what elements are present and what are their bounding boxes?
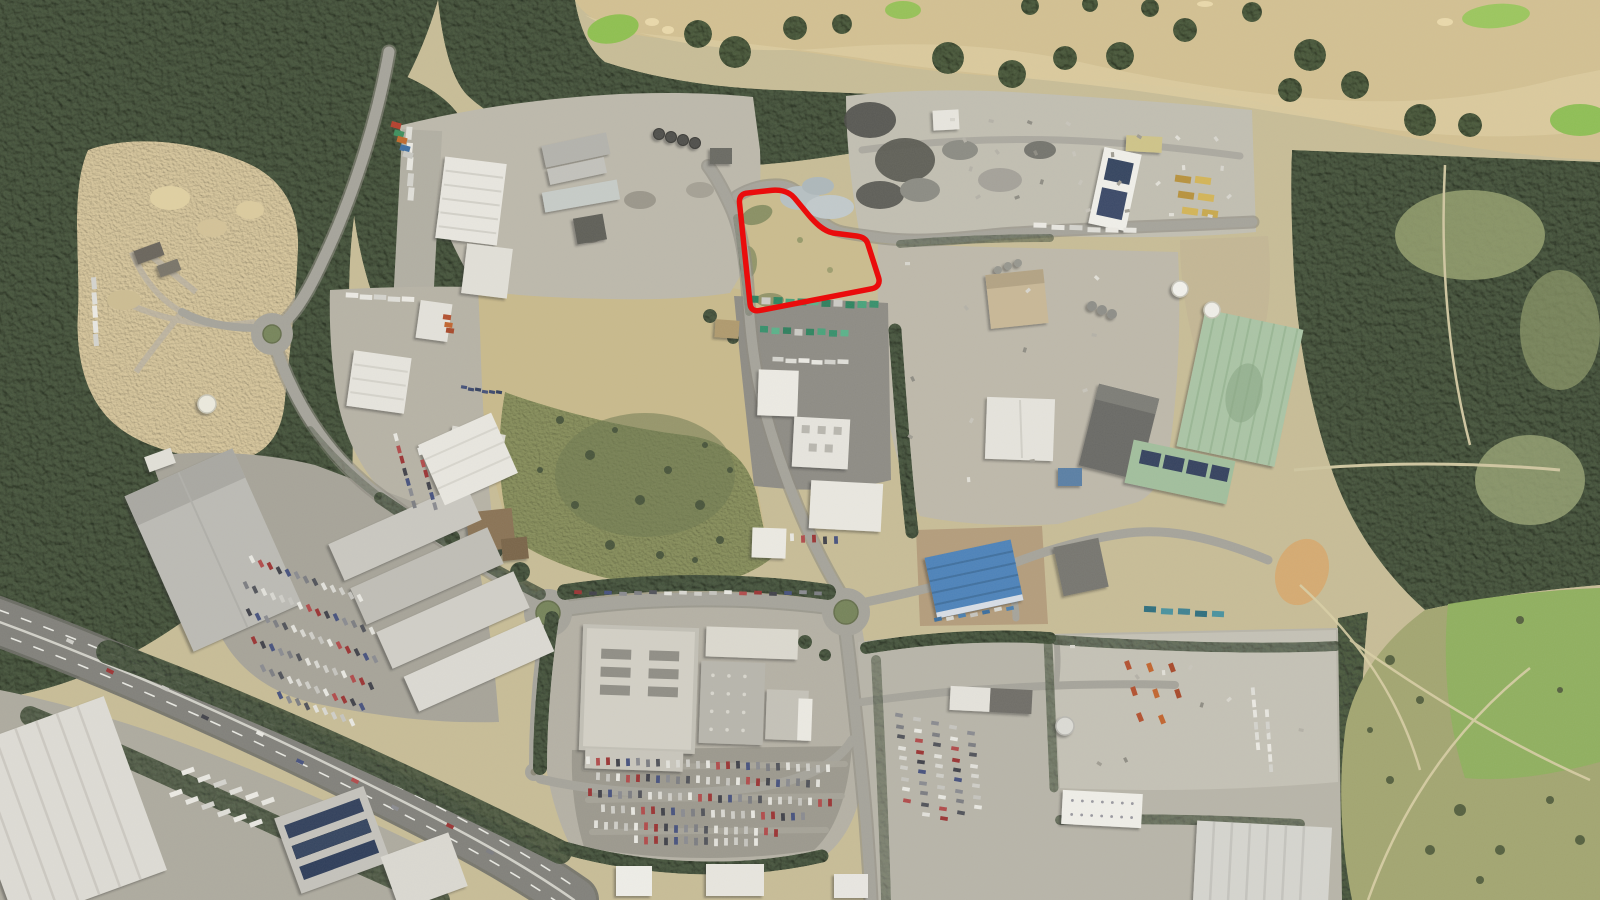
- warehouse-mid-left: [346, 350, 411, 414]
- heathland-south-east: [1300, 585, 1600, 900]
- small-building-south-2: [706, 864, 764, 896]
- white-unit-ne: [932, 109, 959, 130]
- long-building-south: [949, 686, 1032, 714]
- scrap-ground-bottom-right: [1052, 630, 1338, 790]
- office-building-south: [1061, 790, 1143, 828]
- marquee-building: [751, 527, 786, 558]
- yellow-shed: [1126, 135, 1163, 153]
- green-paddock-east: [1446, 588, 1600, 779]
- screenshot-root: [0, 0, 1600, 900]
- dark-shed-north: [573, 214, 607, 245]
- retail-store-east-block: [699, 661, 766, 745]
- small-building-south-1: [616, 866, 652, 896]
- retail-annex-north: [706, 626, 799, 659]
- quarry-tank: [198, 395, 216, 413]
- small-dark-unit: [710, 148, 732, 164]
- yard-building-2: [792, 417, 851, 470]
- shed-mid-left-2: [416, 300, 453, 342]
- big-warehouse-south-east: [1193, 821, 1332, 900]
- retail-entrance: [765, 689, 813, 741]
- layby-strip: [394, 129, 442, 291]
- satellite-dome: [1172, 281, 1188, 297]
- plant-building-tan: [985, 269, 1048, 329]
- warehouse-north-2: [461, 243, 513, 298]
- warehouse-north-1: [435, 157, 507, 246]
- roundabout-west: [251, 313, 293, 355]
- retail-store: [581, 626, 697, 752]
- round-tank-south: [1056, 717, 1074, 735]
- yard-building-3: [809, 480, 883, 532]
- small-house-field: [714, 319, 739, 339]
- sand-quarry-works: [77, 141, 298, 460]
- yard-shed-1: [757, 369, 799, 416]
- water-tank: [1204, 302, 1220, 318]
- blue-bit: [1058, 468, 1082, 486]
- aerial-photo: [0, 0, 1600, 900]
- small-building-south-3: [834, 874, 868, 898]
